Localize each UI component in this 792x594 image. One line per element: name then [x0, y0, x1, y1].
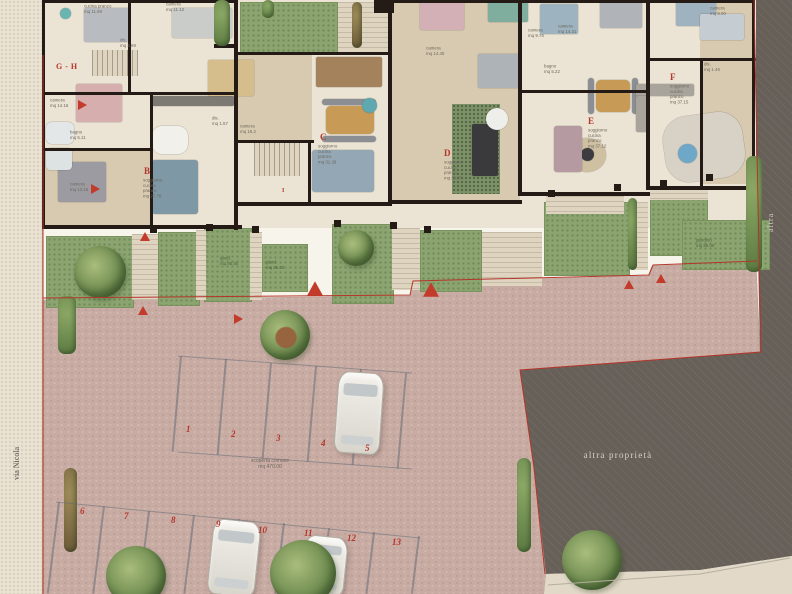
garden-label: giard. mq 95.00 — [220, 256, 238, 267]
apartment-label-D: D — [444, 148, 451, 158]
room-label: camera mq 16.2 — [240, 124, 256, 135]
room-label: dis. mq 1.46 — [704, 62, 720, 73]
parking-number-3: 3 — [276, 433, 281, 443]
room-label: soggiorno cucina pranzo mq 27.78 — [143, 178, 162, 199]
room-label: camera mq 14.16 — [50, 98, 68, 109]
entrance-arrow — [138, 306, 148, 315]
wall — [42, 148, 152, 151]
garden-label: giard. mq 85.00 — [266, 260, 284, 271]
wardrobe — [700, 14, 744, 40]
street-sidewalk — [0, 0, 43, 594]
apartment-label-I: I — [282, 188, 285, 194]
courtyard-label-line2: mq 470.00 — [258, 464, 282, 470]
parking-number-5: 5 — [365, 443, 370, 453]
tree — [338, 230, 374, 266]
bed-pink — [420, 0, 464, 30]
entrance-arrow — [624, 280, 634, 289]
wall — [236, 140, 314, 143]
other-property-block — [520, 350, 792, 574]
wall — [388, 0, 754, 3]
parking-number-12: 12 — [347, 533, 356, 543]
wall — [42, 0, 238, 3]
steps-path — [392, 228, 420, 290]
parking-number-11: 11 — [304, 528, 313, 538]
hedge — [746, 156, 762, 272]
other-property-label: altra proprietà — [548, 450, 688, 460]
room-label: camera mq 9.00 — [710, 6, 726, 17]
tree — [74, 246, 126, 298]
parking-number-9: 9 — [216, 519, 221, 529]
steps-path — [250, 232, 262, 300]
wall — [42, 0, 45, 228]
apartment-label-B: B — [144, 166, 151, 176]
entrance-arrow — [423, 282, 439, 296]
rug-round — [362, 98, 377, 113]
steps-path — [132, 234, 158, 300]
entrance-arrow — [140, 232, 150, 241]
steps-path — [196, 230, 206, 300]
hedge — [352, 2, 362, 48]
wall — [206, 224, 213, 231]
entrance-arrow — [234, 314, 243, 324]
wall — [518, 0, 522, 196]
parking-number-13: 13 — [392, 537, 401, 547]
hedge — [58, 296, 76, 354]
bed — [600, 0, 642, 28]
table-round — [486, 108, 508, 130]
shower — [46, 148, 72, 170]
coffee-table — [581, 148, 594, 161]
wall — [334, 220, 341, 227]
stairs — [254, 142, 300, 176]
kitchen-wood — [316, 57, 382, 87]
adjacent-property-edge-label: altra — [766, 213, 775, 232]
hedge — [628, 198, 637, 270]
site-plan-drawing: via Nicola altra altra proprietà scopert… — [0, 0, 792, 594]
room-label: soggiorno cucina pranzo mq 31.28 — [318, 144, 337, 165]
pool-spa — [678, 144, 697, 163]
room-label: dis. mq 1.57 — [212, 116, 228, 127]
courtyard-area-label: scoperta comune mq 470.00 — [238, 458, 302, 471]
wall — [520, 192, 650, 196]
room-label: dis. mq 3.69 — [120, 38, 136, 49]
wall — [42, 92, 238, 95]
apartment-label-C: C — [320, 132, 327, 142]
wall — [390, 200, 522, 204]
bed — [478, 54, 520, 88]
room-label: camera mq 14.40 — [426, 46, 444, 57]
garden-label: giardino mq 85.00 — [696, 238, 714, 249]
garden-patch — [240, 2, 338, 54]
apartment-label-F: F — [670, 72, 676, 82]
parked-car — [333, 370, 385, 455]
room-label: cucina pranzo mq 11.90 — [84, 4, 111, 15]
apartment-label-E: E — [588, 116, 595, 126]
room-label: soggiorno cucina pranzo mq 37.15 — [670, 84, 689, 105]
parked-car — [206, 518, 262, 594]
wall — [614, 184, 621, 191]
side-table — [60, 8, 71, 19]
kitchen-island — [472, 124, 498, 176]
parking-number-4: 4 — [321, 438, 326, 448]
room-label: bagno mq 5.11 — [70, 130, 86, 141]
street-name-label: via Nicola — [12, 447, 21, 480]
hedge — [214, 0, 230, 46]
room-label: soggiorno cucina pranzo mq 36.70 — [444, 160, 463, 181]
wall — [308, 140, 311, 205]
room-label: bagno mq 5.22 — [544, 64, 560, 75]
parking-number-1: 1 — [186, 424, 191, 434]
wall — [236, 52, 392, 55]
parking-number-10: 10 — [258, 525, 267, 535]
bed-teal — [488, 0, 528, 22]
parking-number-7: 7 — [124, 511, 129, 521]
room-label: camera mq 11.12 — [166, 2, 184, 13]
wall — [390, 222, 397, 229]
room-label: camera mq 14.31 — [558, 24, 576, 35]
room-label: camera mq 13.16 — [70, 182, 88, 193]
entrance-arrow — [91, 184, 100, 194]
wall — [150, 92, 153, 228]
parking-number-2: 2 — [231, 429, 236, 439]
wall — [660, 180, 667, 187]
garden-patch — [158, 232, 200, 306]
room-label: soggiorno cucina pranzo mq 37.12 — [588, 128, 607, 149]
bed-tan — [208, 60, 254, 96]
chairs — [322, 136, 376, 142]
apartment-label-GH: G - H — [56, 62, 78, 71]
hedge — [64, 468, 77, 552]
wall — [374, 0, 394, 13]
tree — [260, 310, 310, 360]
kitchen-counter — [152, 96, 234, 106]
dining-table — [152, 126, 188, 154]
courtyard-label-line1: scoperta comune — [251, 458, 289, 464]
wall — [548, 190, 555, 197]
entrance-arrow — [307, 281, 323, 295]
tree — [562, 530, 622, 590]
chairs — [588, 78, 594, 114]
wall — [520, 90, 650, 93]
wall — [388, 0, 392, 204]
entrance-arrow — [656, 274, 666, 283]
hedge — [262, 0, 274, 18]
stairs — [92, 50, 138, 76]
parking-number-6: 6 — [80, 506, 85, 516]
wall — [252, 226, 259, 233]
steps-path — [482, 232, 542, 286]
dining-table-wood — [596, 80, 630, 112]
wall — [150, 226, 157, 233]
entrance-arrow — [78, 100, 87, 110]
wall — [706, 174, 713, 181]
parking-number-8: 8 — [171, 515, 176, 525]
wall — [234, 0, 238, 230]
steps-path — [546, 196, 624, 214]
room-label: camera mq 9.76 — [528, 28, 544, 39]
wall — [700, 60, 703, 186]
sofa-mauve — [554, 126, 582, 172]
wall — [646, 0, 650, 190]
hedge — [517, 458, 531, 552]
wall — [424, 226, 431, 233]
wall — [238, 202, 392, 206]
